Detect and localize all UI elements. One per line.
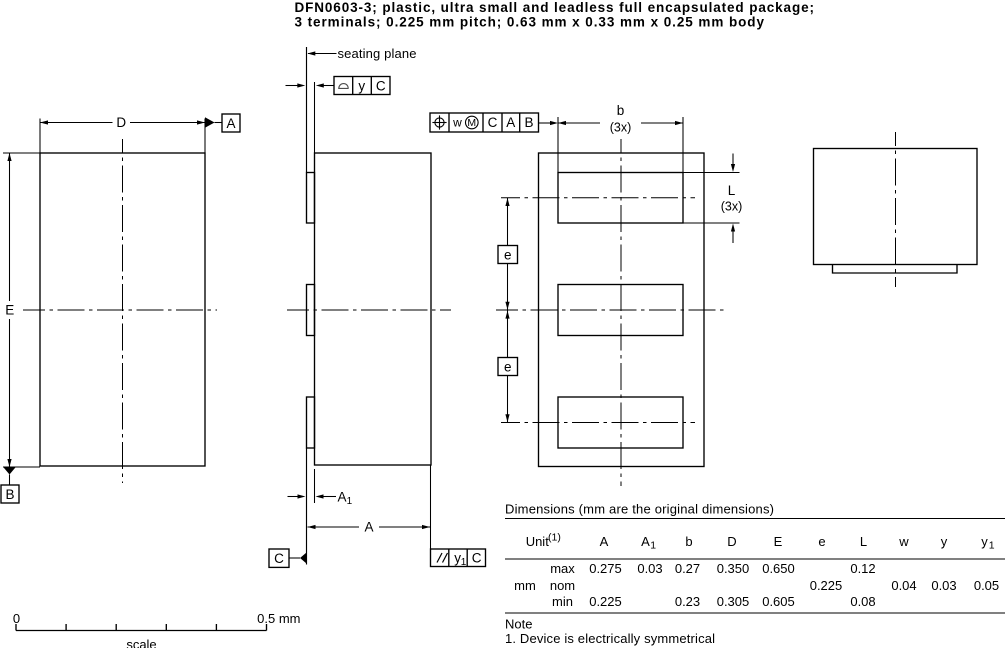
svg-text:y: y <box>358 78 365 93</box>
svg-text:A: A <box>364 520 373 535</box>
svg-text:A: A <box>338 489 347 504</box>
svg-text:b: b <box>685 534 692 549</box>
svg-text:L: L <box>728 183 736 198</box>
svg-text:C: C <box>488 115 498 130</box>
svg-text:mm: mm <box>514 578 536 593</box>
svg-text:0.12: 0.12 <box>850 561 875 576</box>
svg-text:0.5 mm: 0.5 mm <box>257 611 300 626</box>
svg-text:0.305: 0.305 <box>717 594 750 609</box>
svg-text:B: B <box>524 115 533 130</box>
svg-text:seating plane: seating plane <box>338 46 417 61</box>
svg-text:1: 1 <box>650 539 656 551</box>
svg-text:0.05: 0.05 <box>974 578 999 593</box>
svg-text:y: y <box>941 534 948 549</box>
svg-text:0.04: 0.04 <box>891 578 916 593</box>
svg-text:max: max <box>550 561 575 576</box>
svg-text:0.650: 0.650 <box>762 561 795 576</box>
svg-text:C: C <box>472 550 482 565</box>
svg-text:1. Device is electrically symm: 1. Device is electrically symmetrical <box>505 631 715 646</box>
svg-text:1: 1 <box>989 539 995 551</box>
svg-text:3 terminals; 0.225 mm pitch; 0: 3 terminals; 0.225 mm pitch; 0.63 mm x 0… <box>295 15 765 30</box>
svg-text:0.605: 0.605 <box>762 594 795 609</box>
svg-text:nom: nom <box>550 578 575 593</box>
svg-text:E: E <box>5 303 14 318</box>
svg-text:0.225: 0.225 <box>810 578 843 593</box>
svg-text:scale: scale <box>126 637 156 648</box>
svg-text:(1): (1) <box>548 532 561 544</box>
svg-text:DFN0603-3; plastic, ultra smal: DFN0603-3; plastic, ultra small and lead… <box>295 0 815 15</box>
svg-text:0.27: 0.27 <box>675 561 700 576</box>
svg-text:A: A <box>641 534 650 549</box>
svg-text:D: D <box>116 115 126 130</box>
svg-text:e: e <box>504 247 512 262</box>
svg-text:(3x): (3x) <box>610 120 632 134</box>
svg-text:0.03: 0.03 <box>931 578 956 593</box>
svg-text:E: E <box>774 534 783 549</box>
svg-text:D: D <box>727 534 736 549</box>
svg-text:b: b <box>617 103 625 118</box>
svg-text:Note: Note <box>505 616 532 631</box>
svg-text:Unit: Unit <box>526 534 550 549</box>
svg-text:y: y <box>981 534 988 549</box>
svg-text:w: w <box>452 116 462 130</box>
svg-text:C: C <box>274 551 284 566</box>
svg-text:min: min <box>552 594 573 609</box>
svg-text:e: e <box>818 534 825 549</box>
svg-text:0.275: 0.275 <box>589 561 622 576</box>
svg-text:0.08: 0.08 <box>850 594 875 609</box>
svg-text:0.23: 0.23 <box>675 594 700 609</box>
svg-text:A: A <box>600 534 609 549</box>
svg-text:1: 1 <box>347 496 353 507</box>
svg-text:0.03: 0.03 <box>637 561 662 576</box>
svg-text:0: 0 <box>13 611 20 626</box>
svg-text:0.350: 0.350 <box>717 561 750 576</box>
svg-text:Dimensions (mm are the origina: Dimensions (mm are the original dimensio… <box>505 502 774 517</box>
svg-text:M: M <box>467 117 476 129</box>
svg-text:A: A <box>226 116 235 131</box>
svg-text:0.225: 0.225 <box>589 594 622 609</box>
svg-text:1: 1 <box>461 557 467 568</box>
svg-text:e: e <box>504 359 512 374</box>
svg-text:(3x): (3x) <box>721 200 743 214</box>
svg-text:A: A <box>506 115 515 130</box>
svg-text:C: C <box>376 78 386 93</box>
svg-text:w: w <box>898 534 909 549</box>
svg-text:B: B <box>5 487 14 502</box>
svg-text:L: L <box>860 534 867 549</box>
